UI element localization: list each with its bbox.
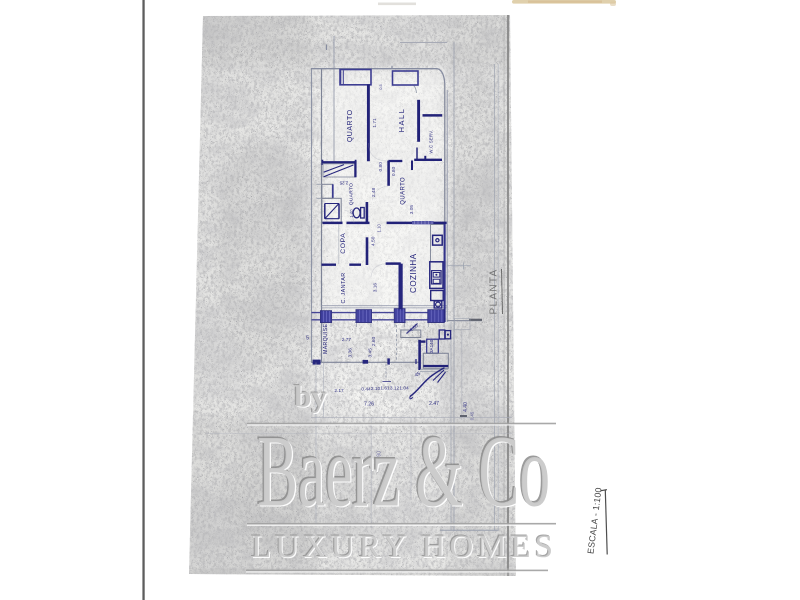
svg-text:3.12: 3.12 bbox=[390, 386, 400, 392]
svg-text:3.16: 3.16 bbox=[372, 283, 378, 293]
svg-text:2.17: 2.17 bbox=[334, 388, 344, 394]
svg-text:2.60: 2.60 bbox=[371, 336, 377, 346]
svg-text:Baerz & Co: Baerz & Co bbox=[257, 415, 550, 529]
svg-text:1.40: 1.40 bbox=[349, 209, 354, 218]
svg-text:2.48: 2.48 bbox=[371, 188, 377, 198]
svg-text:3A140: 3A140 bbox=[429, 339, 434, 353]
svg-text:1.10: 1.10 bbox=[377, 224, 382, 233]
svg-text:0.80: 0.80 bbox=[378, 162, 384, 172]
svg-text:3.36: 3.36 bbox=[347, 348, 353, 358]
svg-text:COZINHA: COZINHA bbox=[409, 253, 418, 293]
svg-text:COPA: COPA bbox=[340, 233, 347, 254]
svg-text:2.10: 2.10 bbox=[371, 386, 381, 392]
svg-text:0.5: 0.5 bbox=[378, 83, 383, 89]
svg-text:0.80: 0.80 bbox=[391, 166, 397, 176]
svg-text:1.61: 1.61 bbox=[380, 386, 390, 392]
svg-text:PLANTA: PLANTA bbox=[489, 269, 500, 315]
svg-text:3.45: 3.45 bbox=[367, 348, 373, 358]
svg-text:HALL: HALL bbox=[397, 108, 406, 133]
svg-text:3.05: 3.05 bbox=[409, 205, 415, 215]
svg-text:MARQUISE: MARQUISE bbox=[323, 324, 329, 354]
svg-text:2.47: 2.47 bbox=[429, 401, 439, 407]
svg-text:ESCALA - 1:100: ESCALA - 1:100 bbox=[585, 487, 603, 555]
svg-text:1.04: 1.04 bbox=[399, 386, 409, 392]
svg-text:0.44: 0.44 bbox=[361, 387, 371, 393]
svg-text:C. JANTAR: C. JANTAR bbox=[341, 272, 347, 303]
svg-text:5: 5 bbox=[306, 336, 309, 342]
svg-text:4.40: 4.40 bbox=[463, 402, 469, 412]
svg-text:7.26: 7.26 bbox=[364, 402, 374, 408]
svg-text:by: by bbox=[294, 379, 327, 414]
svg-text:2.77: 2.77 bbox=[342, 337, 352, 343]
svg-text:W.C SERV.: W.C SERV. bbox=[428, 130, 433, 154]
svg-text:QUARTO: QUARTO bbox=[347, 109, 354, 142]
svg-text:2.25: 2.25 bbox=[339, 180, 348, 185]
svg-text:QUARTO: QUARTO bbox=[349, 183, 355, 206]
svg-text:QUARTO: QUARTO bbox=[400, 177, 406, 205]
svg-text:4.50: 4.50 bbox=[370, 236, 376, 246]
svg-text:1.71: 1.71 bbox=[372, 118, 378, 128]
